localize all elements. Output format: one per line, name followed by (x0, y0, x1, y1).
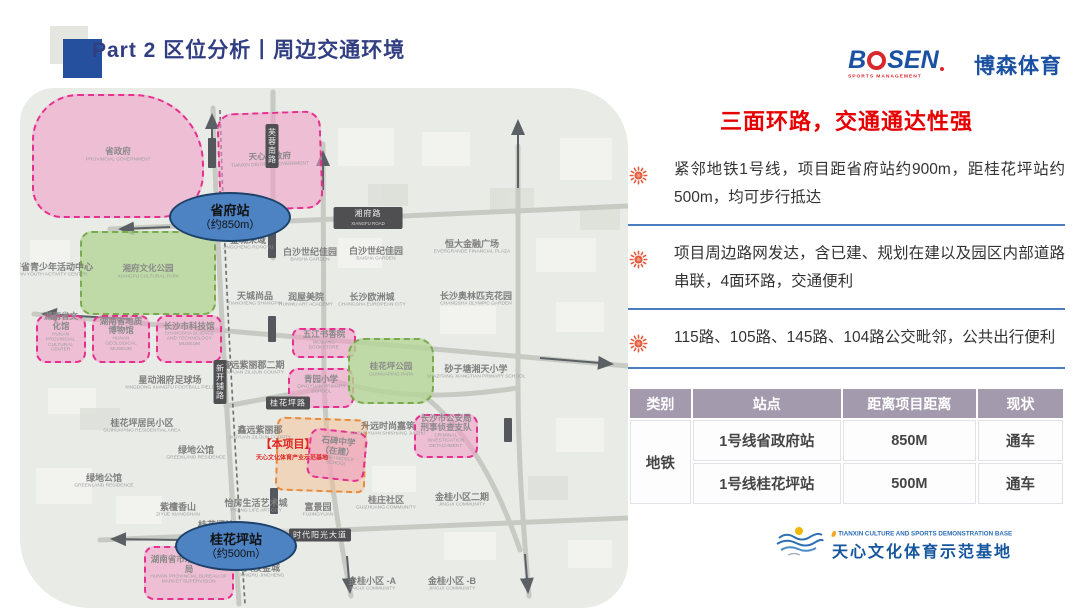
road-badge-text: 湘府路 (338, 208, 399, 219)
bullet-item-1: 紧邻地铁1号线，项目距省府站约900m，距桂花坪站约500m，均可步行抵达 (628, 156, 1065, 211)
divider-line (628, 224, 1065, 226)
zone-label-en: CHANGSHA SCIENCE AND TECHNOLOGY MUSEUM (161, 331, 217, 346)
col-header-category: 类别 (630, 389, 691, 418)
cell-distance: 500M (843, 463, 976, 504)
col-header-station: 站点 (693, 389, 841, 418)
road-badge-text: 新开铺路 (215, 364, 226, 400)
sun-icon (628, 156, 674, 211)
road-badge: 桂花坪路 (266, 397, 310, 410)
bosen-dot-icon (940, 67, 944, 71)
bosen-letters-sen: SEN (887, 48, 938, 73)
bosen-logo: B SEN SPORTS MANAGEMENT 博森体育 (848, 48, 1062, 82)
station-name: 省府站 (210, 203, 249, 219)
map-label-zh: 天心文化体育产业示范基地 (256, 456, 328, 463)
bosen-o-swirl-icon (867, 51, 886, 70)
sun-icon (628, 240, 674, 295)
road-badge: 芙蓉南路 (266, 124, 279, 168)
map-label-en: YIFANG LIFE ART CITY (230, 508, 282, 513)
table-header-row: 类别 站点 距离项目距离 现状 (630, 389, 1063, 418)
map-label: 金桂小区 -BJINGUI COMMUNITY (413, 576, 491, 594)
road-badge-text: 时代阳光大道 (293, 530, 347, 541)
zone-label: 五江书香院 (303, 330, 346, 340)
sun-icon (628, 324, 674, 354)
map-label: 恒大金融广场EVERGRANDE FINANCIAL PLAZA (408, 239, 535, 257)
divider-line (628, 308, 1065, 310)
zone-label: 湖南省地质博物馆 (96, 317, 146, 337)
cell-status: 通车 (978, 420, 1063, 461)
panel-headline: 三面环路，交通通达性强 (628, 104, 1065, 136)
bullet-text: 紧邻地铁1号线，项目距省府站约900m，距桂花坪站约500m，均可步行抵达 (674, 156, 1065, 211)
col-header-status: 现状 (978, 389, 1063, 418)
map-label: 紫檀香山ZIYUE XIANGSHAN (142, 502, 215, 520)
metro-platform (504, 418, 512, 442)
map-label-en: EVERGRANDE FINANCIAL PLAZA (434, 249, 510, 254)
map-label: 湖南省青少年活动中心HUNAN YOUTH ACTIVITY CENTER (20, 262, 114, 280)
bullet-item-3: 115路、105路、145路、104路公交毗邻，公共出行便利 (628, 324, 1065, 354)
zone-label-en: PROVINCIAL GOVERNMENT (39, 157, 196, 162)
bosen-letter-b: B (848, 48, 866, 73)
map-label-en: JINGUI COMMUNITY (439, 502, 486, 507)
road-badge-en: XIANGFU ROAD (351, 221, 384, 226)
road-badge-text: 芙蓉南路 (267, 128, 278, 164)
map-label: 金桂小区二期JINGUI COMMUNITY (423, 492, 501, 510)
station-callout: 桂花坪站（约500m） (175, 521, 297, 571)
map-label-en: JINGUI COMMUNITY (429, 586, 476, 591)
map-label-en: HUNAN YOUTH ACTIVITY CENTER (20, 272, 87, 277)
cell-distance: 850M (843, 420, 976, 461)
zone-label: 省政府 (105, 147, 131, 157)
map-label-zh: 【本项目】 (261, 439, 316, 452)
bullet-text: 项目周边路网发达，含已建、规划在建以及园区内部道路串联，4面环路，交通便利 (674, 240, 1065, 295)
road-badge: 时代阳光大道 (289, 529, 351, 542)
bosen-tagline: SPORTS MANAGEMENT (848, 73, 922, 79)
map-label: 天心文化体育产业示范基地 (256, 456, 328, 463)
waves-sun-icon (774, 522, 824, 567)
map-label-en: CHANGSHA OLYMPIC GARDEN (440, 301, 511, 306)
zone-label-en: HUNAN GEOLOGICAL MUSEUM (97, 336, 145, 351)
map-label-en: BAISHA GARDEN (356, 256, 395, 261)
table-row: 1号线桂花坪站 500M 通车 (630, 463, 1063, 504)
location-map: 省政府PROVINCIAL GOVERNMENT天心区政府TIANXIN DIS… (20, 88, 628, 608)
map-label-en: CHANGSHA EUROPEAN CITY (338, 302, 405, 307)
bullet-text: 115路、105路、145路、104路公交毗邻，公共出行便利 (674, 324, 1055, 354)
cell-station: 1号线省政府站 (693, 420, 841, 461)
map-label-en: JINGCHENG RONGYU (223, 245, 274, 250)
bullet-item-2: 项目周边路网发达，含已建、规划在建以及园区内部道路串联，4面环路，交通便利 (628, 240, 1065, 295)
station-distance: （约500m） (206, 548, 267, 560)
zone-label-en: WUJIANG BOOKSTORE (297, 340, 351, 350)
map-zone-science-museum: 长沙市科技馆CHANGSHA SCIENCE AND TECHNOLOGY MU… (156, 315, 222, 363)
road-badge-text: 桂花坪路 (270, 398, 306, 409)
cell-category: 地铁 (630, 420, 691, 504)
map-label-en: ZIYUE XIANGSHAN (156, 512, 200, 517)
map-label: 绿地公馆GREENLAND RESIDENCE (147, 445, 246, 463)
map-label-en: XINGRU JINCHENG (240, 573, 285, 578)
table-row: 地铁 1号线省政府站 850M 通车 (630, 420, 1063, 461)
map-label: 【本项目】 (261, 439, 316, 452)
map-zone-provincial-government: 省政府PROVINCIAL GOVERNMENT (32, 94, 204, 218)
slide: Part 2 区位分析丨周边交通环境 B SEN SPORTS MANAGEME… (0, 0, 1080, 608)
map-label-en: GREENLAND RESIDENCE (74, 483, 133, 488)
tianxin-logo-text: TIANXIN CULTURE AND SPORTS DEMONSTRATION… (832, 528, 1063, 562)
map-label: 长沙奥林匹克花园CHANGSHA OLYMPIC GARDEN (417, 291, 536, 309)
map-label: 富景园FUJINGYUAN (292, 502, 343, 520)
station-callout: 省府站（约850m） (169, 192, 291, 242)
cell-status: 通车 (978, 463, 1063, 504)
map-label: 怡房生活艺术城YIFANG LIFE ART CITY (213, 498, 299, 516)
transit-table: 类别 站点 距离项目距离 现状 地铁 1号线省政府站 850M 通车 1号线桂花… (628, 387, 1065, 506)
col-header-distance: 距离项目距离 (843, 389, 976, 418)
map-label: 绿地公馆GREENLAND RESIDENCE (55, 473, 154, 491)
map-label: 白沙世纪佳园BAISHA GARDEN (343, 246, 408, 264)
map-label: 桂花坪居民小区GUIHUAPING RESIDENTIAL AREA (78, 418, 207, 436)
map-zone-wujiang-bookstore: 五江书香院WUJIANG BOOKSTORE (292, 328, 356, 358)
map-overlays: 省政府PROVINCIAL GOVERNMENT天心区政府TIANXIN DIS… (20, 88, 628, 608)
map-label: 金桂小区 -AJINGUI COMMUNITY (333, 576, 411, 594)
map-zone-geological-museum: 湖南省地质博物馆HUNAN GEOLOGICAL MUSEUM (92, 315, 150, 363)
map-label: 长沙欧洲城CHANGSHA EUROPEAN CITY (316, 292, 428, 310)
road-badge: 新开铺路 (214, 360, 227, 404)
leaf-icon (831, 530, 836, 537)
map-label: 砂子塘湘天小学SHAZITANG XIANGTIAN PRIMARY SCHOO… (394, 364, 559, 382)
road-badge: 湘府路XIANGFU ROAD (334, 207, 403, 229)
zone-label: 湖南省文化馆 (40, 312, 82, 332)
map-label-en: BAISHA GARDEN (290, 257, 329, 262)
map-label-en: FUJINGYUAN (303, 512, 334, 517)
map-label-en: XINYUAN ZILIJUN COUNTY (222, 370, 284, 375)
zone-label-en: QINGYUAN PRIMARY SCHOOL (293, 384, 349, 394)
tianxin-logo-en: TIANXIN CULTURE AND SPORTS DEMONSTRATION… (832, 530, 1012, 537)
right-panel: 三面环路，交通通达性强 紧邻地铁1号线，项目距省府站约900m，距桂花坪站约50… (628, 96, 1065, 567)
zone-label-en: HUNAN PROVINCIAL CULTURAL CENTER (41, 332, 81, 352)
map-label-en: GREENLAND RESIDENCE (166, 455, 225, 460)
map-label: 升远时尚嘉筑SHENGYUAN SHISHANG JIAZHU (326, 421, 451, 439)
bosen-wordmark: B SEN SPORTS MANAGEMENT (848, 48, 967, 82)
zone-label: 湘府文化公园 (122, 264, 173, 274)
bosen-cn-name: 博森体育 (974, 50, 1062, 80)
cell-station: 1号线桂花坪站 (693, 463, 841, 504)
map-label-en: JINGUI COMMUNITY (349, 586, 396, 591)
map-label-en: SHENGYUAN SHISHANG JIAZHU (351, 431, 426, 436)
map-zone-hunan-cultural-center: 湖南省文化馆HUNAN PROVINCIAL CULTURAL CENTER (36, 315, 86, 363)
station-distance: （约850m） (200, 219, 261, 231)
metro-platform (208, 138, 216, 168)
divider-line (628, 367, 1065, 369)
map-label-en: GUIHUAPING RESIDENTIAL AREA (103, 428, 180, 433)
map-label-en: XINGDONG XIANGFU FOOTBALL FIELD (125, 385, 215, 390)
map-label-en: SHAZITANG XIANGTIAN PRIMARY SCHOOL (427, 374, 526, 379)
metro-platform (268, 316, 276, 342)
tianxin-logo-cn: 天心文化体育示范基地 (832, 538, 1012, 562)
map-label-en: GUIZHUANG COMMUNITY (356, 505, 416, 510)
page-title: Part 2 区位分析丨周边交通环境 (92, 34, 405, 64)
tianxin-logo: TIANXIN CULTURE AND SPORTS DEMONSTRATION… (628, 522, 1065, 567)
map-label: 桂庄社区GUIZHUANG COMMUNITY (336, 495, 436, 513)
zone-label-en: HUNAN PROVINCIAL BUREAU OF MARKET SUPERV… (150, 574, 229, 584)
station-name: 桂花坪站 (210, 532, 262, 548)
